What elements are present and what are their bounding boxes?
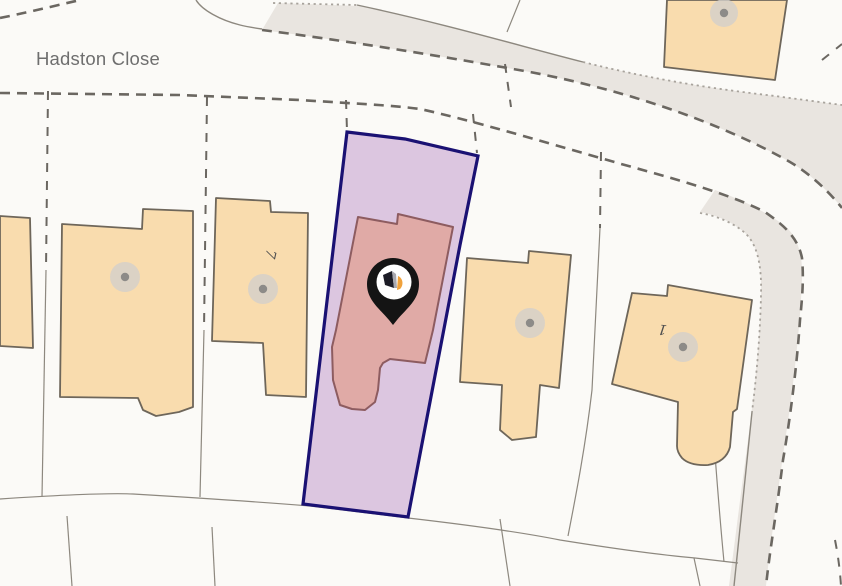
parcel-line	[507, 0, 520, 32]
road-edge-entrance-curve	[196, 0, 262, 29]
boundary-dashed-parcel-side	[600, 152, 601, 228]
address-point-dot	[668, 332, 698, 362]
boundary-dashed-corner	[822, 44, 842, 60]
boundary-dashed-parcel-side	[505, 64, 511, 107]
address-point-dot	[515, 308, 545, 338]
building-footprint	[460, 251, 571, 440]
address-point-dot	[710, 0, 738, 27]
boundary-dashed-corner	[835, 540, 841, 586]
street-name-label: Hadston Close	[36, 48, 160, 69]
boundary-dashed-parcel-side	[346, 100, 347, 131]
parcel-line	[694, 558, 700, 586]
parcel-line	[500, 519, 510, 586]
boundary-dashed-topleft	[0, 0, 80, 18]
boundary-dashed-parcel-side	[473, 114, 477, 153]
map-image: 7 1 Hadston Close	[0, 0, 842, 586]
parcel-line	[568, 228, 600, 536]
boundary-dashed-parcel-side	[46, 91, 48, 270]
parcel-line	[200, 330, 204, 497]
boundary-dashed-parcel-side	[204, 97, 207, 330]
parcel-line	[42, 270, 46, 497]
parcel-line	[212, 527, 215, 586]
parcel-line	[67, 516, 72, 586]
building-footprint	[60, 209, 193, 416]
map-canvas[interactable]: 7 1 Hadston Close	[0, 0, 842, 586]
building-footprint	[0, 216, 33, 348]
address-point-dot	[110, 262, 140, 292]
building-footprint-number-1	[612, 285, 752, 465]
address-point-dot	[248, 274, 278, 304]
